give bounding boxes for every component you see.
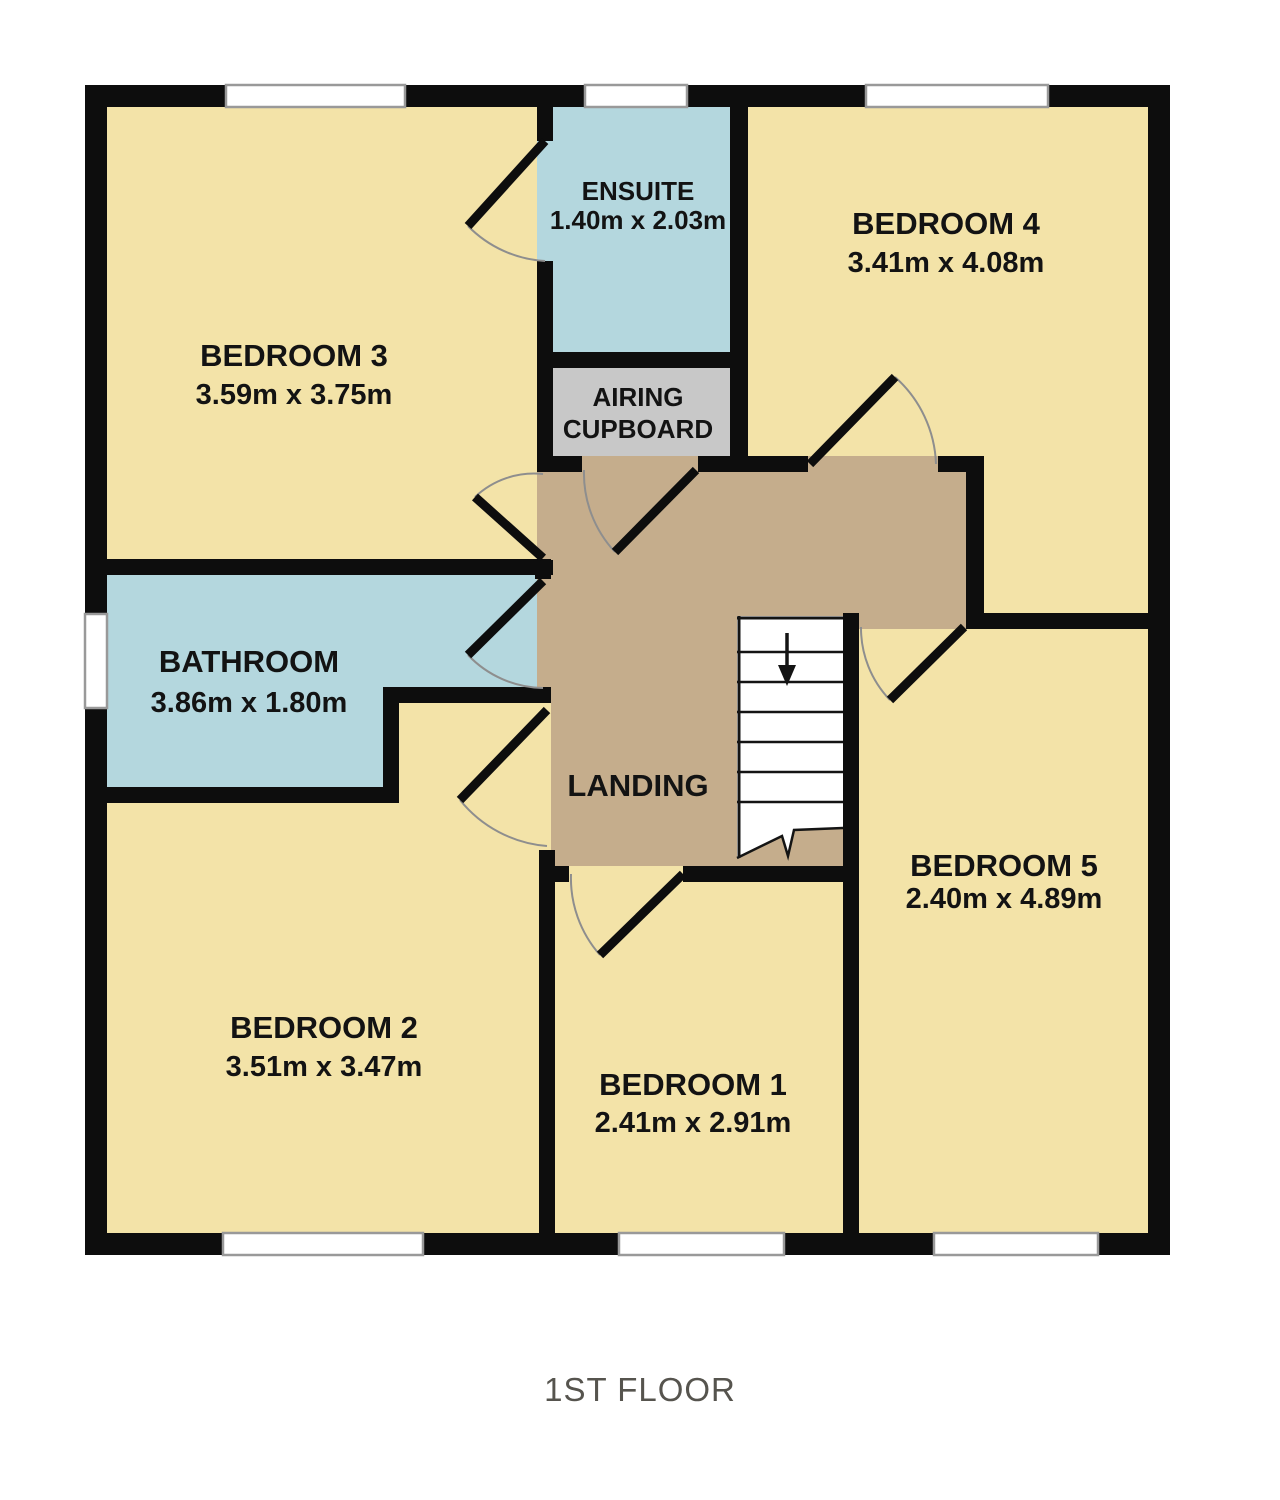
wall-cupboard-bedroom4-bottom: [698, 456, 808, 472]
label-airing-line2: CUPBOARD: [563, 414, 713, 444]
label-landing: LANDING: [567, 768, 708, 803]
label-ensuite-dims: 1.40m x 2.03m: [550, 205, 726, 235]
wall-stairs-bedroom5: [843, 613, 859, 1233]
label-bedroom5-name: BEDROOM 5: [910, 848, 1098, 883]
wall-bedroom3-ensuite-upper: [537, 107, 553, 141]
room-bedroom5: [843, 613, 1148, 1233]
window-bathroom: [85, 614, 107, 708]
window-bedroom5: [934, 1233, 1098, 1255]
label-ensuite-name: ENSUITE: [582, 176, 695, 206]
label-bedroom5-dims: 2.40m x 4.89m: [906, 883, 1103, 915]
wall-bathroom-notch: [383, 695, 399, 803]
label-bedroom2-name: BEDROOM 2: [230, 1010, 418, 1045]
label-bedroom4-name: BEDROOM 4: [852, 206, 1041, 241]
wall-ensuite-bedroom4: [730, 107, 748, 472]
label-bedroom1-name: BEDROOM 1: [599, 1067, 787, 1102]
floorplan-page: BEDROOM 3 3.59m x 3.75m ENSUITE 1.40m x …: [0, 0, 1280, 1500]
room-bedroom1: [539, 866, 859, 1233]
room-ensuite: [537, 107, 748, 368]
wall-bedroom2-bedroom1: [539, 850, 555, 1233]
label-bedroom4-dims: 3.41m x 4.08m: [848, 247, 1045, 279]
floor-title: 1ST FLOOR: [544, 1371, 736, 1408]
label-bedroom2-dims: 3.51m x 3.47m: [226, 1051, 423, 1083]
label-bedroom3-name: BEDROOM 3: [200, 338, 388, 373]
wall-ensuite-cupboard: [537, 352, 748, 368]
wall-bathroom-bedroom2: [107, 787, 399, 803]
label-airing-line1: AIRING: [593, 382, 684, 412]
window-ensuite: [585, 85, 687, 107]
label-bedroom3-dims: 3.59m x 3.75m: [196, 379, 393, 411]
wall-bedroom4-bottom-right: [938, 456, 984, 472]
label-bathroom-name: BATHROOM: [159, 644, 339, 679]
wall-bedroom4-bedroom5: [966, 613, 1148, 629]
staircase: [737, 616, 843, 866]
label-bathroom-dims: 3.86m x 1.80m: [151, 687, 348, 719]
label-bedroom1-dims: 2.41m x 2.91m: [595, 1107, 792, 1139]
wall-bedroom1-top-left-stub: [539, 866, 569, 882]
window-bedroom4: [866, 85, 1048, 107]
window-bedroom1: [619, 1233, 784, 1255]
wall-bedroom3-bathroom: [107, 559, 551, 575]
window-bedroom2: [223, 1233, 423, 1255]
outer-wall-right: [1148, 85, 1170, 1255]
floor-plan-canvas: BEDROOM 3 3.59m x 3.75m ENSUITE 1.40m x …: [0, 0, 1280, 1500]
wall-bathroom-step: [383, 687, 551, 703]
window-bedroom3: [226, 85, 405, 107]
wall-bedroom1-top-right: [683, 866, 859, 882]
wall-landing-bedroom4-step: [966, 456, 984, 629]
wall-cupboard-bottom-left: [537, 456, 582, 472]
